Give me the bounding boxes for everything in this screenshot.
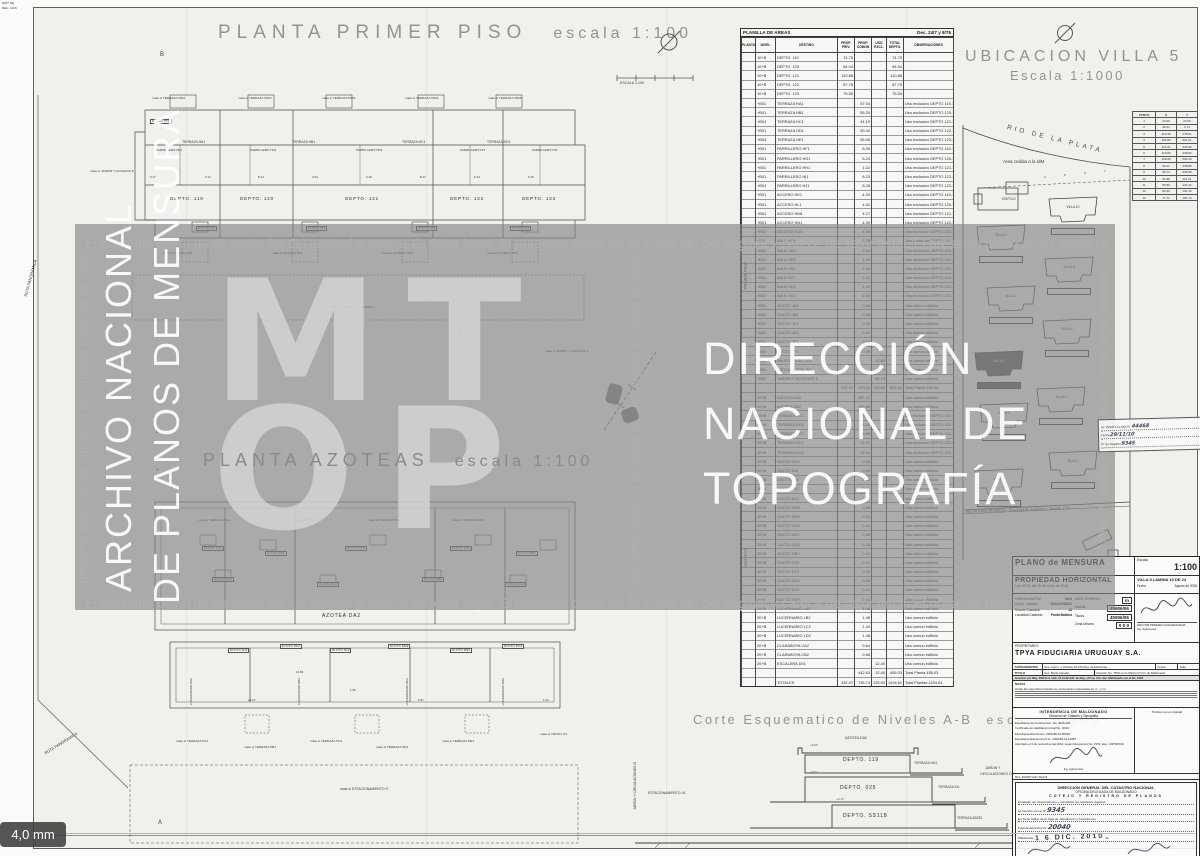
cell-comun: 442.63 <box>855 668 872 677</box>
section-label: ESTACIONAMIENTO JA <box>648 792 685 796</box>
cell-uso: 12.40 <box>872 659 887 668</box>
cell-obs: Uso comun edificio <box>904 622 954 631</box>
cell-planta <box>742 209 756 218</box>
intendencia-subtitle: Direccion de Catastro y Topografia <box>1015 714 1132 719</box>
fecha-label: Fecha <box>1137 584 1146 588</box>
field-value-boxed: 0 0 0 <box>1116 622 1132 629</box>
cell-planta <box>742 163 756 172</box>
intendencia-lines: Expediente de Construccion: No. 3026-006… <box>1015 721 1132 746</box>
titulo-registro: Registro No. 7870 en la Oficina D.N.C. d… <box>1095 670 1199 675</box>
cell-planta <box>742 144 756 153</box>
section-label: JARDIN Y CIRCULACIONES O <box>634 762 638 810</box>
plan-label: mata s/ TERRAZA HD1 <box>376 746 408 749</box>
cell-obs: Uso exclusivo DEPTO 121-1 <box>904 117 954 126</box>
cell-comun <box>855 71 872 80</box>
cell-uso <box>872 98 887 107</box>
stamp-handwritten-value: 44468 <box>1131 423 1149 429</box>
cell-comun <box>855 659 872 668</box>
catastro-date-line: Maldonado, 1 6 DIC. 2010 de <box>1018 834 1194 842</box>
cell-total <box>887 172 904 181</box>
catastro-text4: Fraccionamientos N° 20040 <box>1018 823 1194 832</box>
cell-planta <box>742 677 756 686</box>
table-row: +B01 ACCESO HK1 4.33 Uso exclusivo DEPTO… <box>742 190 954 199</box>
roof-title-scale: escala 1:100 <box>455 453 594 470</box>
table-row: +B01 PARRILLERO HH1 1.02 Uso exclusivo D… <box>742 163 954 172</box>
annotation-label: mata s/ ESTACIONAMIENTO O <box>340 788 388 792</box>
antecedentes-text: Exp. Agrim. J. Pardias 15.076 Reg. de Me… <box>1043 664 1156 669</box>
cell-destino: PARRILLERO HH1 <box>776 163 838 172</box>
cell-obs <box>904 53 954 62</box>
cell-prop: 432.97 <box>838 677 855 686</box>
escala-value: 1:100 <box>1137 562 1197 572</box>
coordinate-row: 13 77.71 181.70 <box>1133 195 1198 201</box>
table-row: 20+B LUCERNARIO LB2 1.46 Uso comun edifi… <box>742 613 954 622</box>
plan-label: mata s/ TERRAZA H001 <box>152 97 185 100</box>
table-row: 20+B CLARABOYA CB2 0.66 Uso comun edific… <box>742 650 954 659</box>
cell-uso <box>872 108 887 117</box>
plan-label: PARRILLERO HH1 <box>356 149 382 152</box>
first-floor-title: PLANTA PRIMER PISOescala 1:100 <box>218 22 692 44</box>
cell-prop <box>838 135 855 144</box>
cell-total <box>887 163 904 172</box>
plan-label: TERRAZA HD1 <box>487 141 510 145</box>
plan-label: PARRILLERO HG1 <box>250 149 277 152</box>
cell-destino: LUCERNARIO LD2 <box>776 631 838 640</box>
cell-planta <box>742 126 756 135</box>
cell-nivel: 10+B <box>756 53 776 62</box>
annotation-label: B <box>160 52 164 59</box>
intendencia-line: Certificado de Habilitacion Final No. /2… <box>1015 726 1132 730</box>
cell-planta <box>742 135 756 144</box>
cell-uso <box>872 181 887 190</box>
cell-obs: Uso exclusivo DEPTO 120-1 <box>904 154 954 163</box>
cell-destino: TERRAZA HE1 <box>776 135 838 144</box>
cell-comun: 735.74 <box>855 677 872 686</box>
cell-obs <box>904 80 954 89</box>
cell-destino: PARRILLERO HF1 <box>776 144 838 153</box>
cell-total <box>887 190 904 199</box>
catastro-tomo-label: Fraccionamientos N° <box>1018 826 1047 830</box>
plan-label: LUCERNARIO DC2 <box>406 678 409 705</box>
measurement-badge: 4,0 mm <box>0 822 66 847</box>
cell-destino <box>776 668 838 677</box>
plan-label: 8.14 <box>258 176 264 179</box>
cell-uso <box>872 613 887 622</box>
cell-prop <box>838 144 855 153</box>
cell-comun: 44.19 <box>855 117 872 126</box>
cell-destino: ACCESO HM1 <box>776 209 838 218</box>
cell-destino: CLARABOYA CB2 <box>776 650 838 659</box>
cell-comun <box>855 80 872 89</box>
table-row: 20+B ESCALERA D01 12.40 Uso comun edific… <box>742 659 954 668</box>
plan-label: DUCTO DJ2 <box>228 648 249 653</box>
cell-comun: 4.31 <box>855 200 872 209</box>
cell-nivel: +B01 <box>756 181 776 190</box>
catastro-text2: se inscribe con el N° 9345 <box>1018 806 1194 815</box>
section-label: +6.05 <box>810 744 818 747</box>
cell-total <box>887 613 904 622</box>
field-value-boxed: 45906/06 <box>1107 614 1132 621</box>
plan-label: 0.14 <box>205 176 211 179</box>
coordinates-body: 1 23.06 23.06 2 48.21 6.71 3 110.35 278.… <box>1133 118 1198 201</box>
areas-table-decree: Dec. 24/7 y 8/76 <box>917 30 951 35</box>
cell-obs: Uso exclusivo DEPTO 121-1 <box>904 209 954 218</box>
cell-planta <box>742 154 756 163</box>
cell-comun: 0.66 <box>855 650 872 659</box>
cell-total: 74.75 <box>887 53 904 62</box>
cell-comun: 1.48 <box>855 631 872 640</box>
cell-destino: DEPTO. 122 <box>776 80 838 89</box>
cell-obs: Uso exclusivo DEPTO 123-1 <box>904 135 954 144</box>
plan-label: mata s/ TERRAZA HB1 <box>244 746 276 749</box>
cell-nivel: +B01 <box>756 209 776 218</box>
cell-uso <box>872 154 887 163</box>
stamp-label: Fecha <box>1101 433 1109 437</box>
cell-uso <box>872 71 887 80</box>
cell-destino: TERRAZA HA1 <box>776 98 838 107</box>
cell-total <box>887 154 904 163</box>
annotation-label: A <box>158 820 162 827</box>
cell-destino: DEPTO. 119 <box>776 53 838 62</box>
catastro-inscribe-label: se inscribe con el N° <box>1018 809 1046 813</box>
table-row: 10+B DEPTO. 121 110.88 110.88 <box>742 71 954 80</box>
cell-comun: 8.26 <box>855 144 872 153</box>
cell-total <box>887 641 904 650</box>
plan-label: DEPTO. 120 <box>240 196 274 201</box>
plan-label: 6.14 <box>474 176 480 179</box>
watermark-archive-line1: ARCHIVO NACIONAL <box>98 240 140 592</box>
field-label: Titulos <box>1075 614 1084 621</box>
section-label: CIRCULACIONES O <box>980 773 1011 777</box>
cell-planta <box>742 200 756 209</box>
catastro-de: de <box>1105 836 1108 840</box>
cell-destino: LUCERNARIO LB2 <box>776 613 838 622</box>
map-label: 7 <box>1104 170 1106 173</box>
cell-uso <box>872 172 887 181</box>
areas-table-title: PLANILLA DE AREAS <box>743 30 790 35</box>
cell-nivel: +B01 <box>756 117 776 126</box>
col-prop-comun: PROP. COMUN <box>855 38 872 53</box>
catastro-line3: COTEJO Y REGISTRO DE PLANOS <box>1018 794 1194 798</box>
cell-destino: PARRILLERO HI1 <box>776 172 838 181</box>
cell-planta <box>742 622 756 631</box>
cadastral-field: Zona Urbana 0 0 0 <box>1075 622 1132 629</box>
stamp-line: N° de Registro 9345 <box>1101 438 1200 448</box>
cell-prop <box>838 108 855 117</box>
roof-title: PLANTA AZOTEASescala 1:100 <box>203 450 593 471</box>
cell-prop <box>838 209 855 218</box>
section-label: +0.15 <box>836 798 844 801</box>
cell-nivel: 10+B <box>756 71 776 80</box>
inscription-stamp: Se TOMO a la hoja N° 44468 Fecha 29/11/1… <box>1098 417 1200 453</box>
cell-prop <box>838 631 855 640</box>
cell-nivel: +B01 <box>756 200 776 209</box>
table-row: 442.63 12.40 455.03 Total Planta 455.03 <box>742 668 954 677</box>
punto-cell: 13 <box>1133 195 1156 201</box>
cell-comun: 8.28 <box>855 181 872 190</box>
plan-label: PARRILLERO HJ1 <box>532 149 558 152</box>
cell-uso <box>872 135 887 144</box>
table-row: 10+B DEPTO. 119 74.75 74.75 <box>742 53 954 62</box>
table-row: +B01 PARRILLERO HI1 8.23 Uso exclusivo D… <box>742 172 954 181</box>
map-label: 5 <box>1064 174 1066 177</box>
measurement-value: 4,0 mm <box>11 827 54 842</box>
cell-uso <box>872 190 887 199</box>
cell-nivel: 20+B <box>756 613 776 622</box>
cell-comun: 1.02 <box>855 163 872 172</box>
cell-comun: 8.23 <box>855 172 872 181</box>
map-label: 4 <box>1044 176 1046 179</box>
cell-prop <box>838 98 855 107</box>
cell-planta <box>742 650 756 659</box>
cell-obs: Uso comun edificio <box>904 613 954 622</box>
cell-uso <box>872 80 887 89</box>
cell-nivel: 10+B <box>756 62 776 71</box>
plan-label: DUCTO DM2 <box>388 644 410 649</box>
cell-uso: 12.40 <box>872 668 887 677</box>
cell-prop <box>838 126 855 135</box>
cell-uso <box>872 53 887 62</box>
cell-obs: Uso exclusivo DEPTO 120-1 <box>904 200 954 209</box>
stamp-handwritten-value: 9345 <box>1121 440 1136 446</box>
cell-planta <box>742 190 756 199</box>
cell-comun: 8.24 <box>855 154 872 163</box>
table-row: +B01 TERRAZA HC1 44.19 Uso exclusivo DEP… <box>742 117 954 126</box>
col-uso: USO EXCL. <box>872 38 887 53</box>
cell-prop <box>838 641 855 650</box>
catastro-text1: Cotejado, sin observaciones y cumplidos … <box>1018 800 1194 805</box>
location-title-label: UBICACION VILLA 5 <box>965 48 1182 65</box>
cell-prop <box>838 181 855 190</box>
cell-uso <box>872 641 887 650</box>
plan-label: 1.95 <box>350 689 356 692</box>
cell-comun: 4.27 <box>855 209 872 218</box>
cell-prop: 84.04 <box>838 62 855 71</box>
coordinates-table: PUNTO X Y 1 23.06 23.06 2 48.21 <box>1132 111 1198 201</box>
map-label: EDIFICIO <box>1002 198 1016 202</box>
cell-prop <box>838 190 855 199</box>
cell-destino: CLARABOYA CA2 <box>776 641 838 650</box>
cell-nivel: +B01 <box>756 126 776 135</box>
col-total: TOTAL DEPTO. <box>887 38 904 53</box>
table-row: +B01 TERRAZA HB1 55.20 Uso exclusivo DEP… <box>742 108 954 117</box>
cell-prop <box>838 668 855 677</box>
propietario-label: PROPIETARIO: <box>1015 644 1039 648</box>
plan-label: DUCTO DN2 <box>450 648 472 653</box>
col-observaciones: OBSERVACIONES <box>904 38 954 53</box>
cell-destino: TOTALES <box>776 677 838 686</box>
cell-prop <box>838 622 855 631</box>
cell-planta <box>742 71 756 80</box>
cell-uso <box>872 126 887 135</box>
cell-nivel: 10+B <box>756 80 776 89</box>
cell-obs: Uso exclusivo DEPTO 120-1 <box>904 108 954 117</box>
cell-planta <box>742 641 756 650</box>
plan-label: mata s/ TERRAZA H002 <box>238 97 271 100</box>
propietario-name: TPYA FIDUCIARIA URUGUAY S.A. <box>1015 650 1197 657</box>
cell-prop <box>838 163 855 172</box>
cell-uso <box>872 631 887 640</box>
stamp-label: Se TOMO a la hoja N° <box>1101 424 1131 429</box>
cell-uso <box>872 209 887 218</box>
cell-nivel: +B01 <box>756 190 776 199</box>
cell-destino: TERRAZA HD1 <box>776 126 838 135</box>
plan-label: LUCERNARIO DD2 <box>502 678 505 705</box>
cell-comun: 1.46 <box>855 613 872 622</box>
cell-obs <box>904 89 954 98</box>
plan-label: mata s/ TERRAZA HE1 <box>442 740 474 743</box>
table-row: +B04 TERRAZA HE1 55.06 Uso exclusivo DEP… <box>742 135 954 144</box>
cell-nivel: +B01 <box>756 108 776 117</box>
cell-obs: Uso comun edificio <box>904 631 954 640</box>
cell-uso <box>872 144 887 153</box>
plan-label: mata s/ TERRAZA HC1 <box>310 740 342 743</box>
villa-label: VILLA 10 <box>1046 205 1100 209</box>
cell-destino: ACCESO HK1 <box>776 190 838 199</box>
cell-obs: Uso comun edificio <box>904 650 954 659</box>
sello-col: Sello <box>1178 664 1199 669</box>
plan-label: 8.17 <box>420 176 426 179</box>
plan-label: mata s/ TERRAZA HA1 <box>176 740 208 743</box>
section-label: DEPTO. SS11B <box>843 814 888 820</box>
table-row: 10+B DEPTO. 122 87.75 87.75 <box>742 80 954 89</box>
cadastral-field: Titulos 45906/06 <box>1075 614 1132 621</box>
field-value: Punta Ballena <box>1051 613 1072 617</box>
cell-uso: 125.90 <box>872 677 887 686</box>
surveyor-signature <box>1137 595 1195 621</box>
cell-total <box>887 622 904 631</box>
cell-prop: 75.55 <box>838 89 855 98</box>
titulo-text: Esc. Maria Canales <box>1043 670 1095 675</box>
north-arrow-icon <box>1052 20 1078 46</box>
plan-label: DUCTO DK2 <box>280 644 302 649</box>
plan-label: LUCERNARIO DA2 <box>190 678 193 705</box>
notas-box: NOTAS Todas las superficies lineales se … <box>1013 681 1199 708</box>
cell-planta <box>742 62 756 71</box>
map-label: Area cedida a la IdM <box>1003 160 1044 165</box>
plan-label: 6.67 <box>418 699 424 702</box>
areas-table-header-row: PLANTA NIVEL DESTINO PROP. PRIV. PROP. C… <box>742 38 954 53</box>
cell-prop <box>838 650 855 659</box>
table-row: 20+B LUCERNARIO LC2 1.44 Uso comun edifi… <box>742 622 954 631</box>
field-label: Zona Urbana <box>1075 622 1094 629</box>
plan-label: 2.40 <box>366 176 372 179</box>
cell-uso <box>872 62 887 71</box>
cell-prop <box>838 613 855 622</box>
date-stamp: 1 6 DIC. 2010 <box>1035 833 1104 842</box>
cell-obs: Uso comun edificio <box>904 659 954 668</box>
table-row: +B01 PARRILLERO HF1 8.26 Uso exclusivo D… <box>742 144 954 153</box>
cell-total <box>887 181 904 190</box>
catastro-number-handwritten: 9345 <box>1047 806 1066 814</box>
cell-planta <box>742 668 756 677</box>
cell-obs: Uso exclusivo DEPTO 119-1 <box>904 190 954 199</box>
cell-prop <box>838 154 855 163</box>
cell-destino: TERRAZA HC1 <box>776 117 838 126</box>
cell-obs: Uso exclusivo DEPTO 121-1 <box>904 163 954 172</box>
intendencia-line: Expediente Electronico P.H.: 2009-88-01-… <box>1015 737 1132 741</box>
table-row: TOTALES 432.97 735.74 125.90 1294.61 Tot… <box>742 677 954 686</box>
cell-nivel: 20+B <box>756 659 776 668</box>
intendencia-line: Aprobado el 3 de noviembre del 2010, seg… <box>1015 742 1132 746</box>
plan-label: DEPTO. 123 <box>522 196 556 201</box>
watermark-dnt-line3: TOPOGRAFÍA <box>703 463 1017 515</box>
plan-label: 11.86 <box>296 671 303 674</box>
annotation-label: REG. 1109 <box>2 7 17 10</box>
cell-uso <box>872 650 887 659</box>
timbres-box: Timbres (en el original) <box>1135 708 1199 773</box>
cell-total <box>887 200 904 209</box>
cell-obs: Total Plantas 1294.61 <box>904 677 954 686</box>
cell-total <box>887 209 904 218</box>
section-label: DEPTO. 025 <box>840 786 876 792</box>
lamina-ref: VILLA 5 LAMINA 10 DE 24 <box>1137 577 1197 582</box>
table-row: +B01 ACCESO HL1 4.31 Uso exclusivo DEPTO… <box>742 200 954 209</box>
villa-outline <box>1046 196 1100 226</box>
cell-total <box>887 631 904 640</box>
cell-planta <box>742 117 756 126</box>
cell-planta <box>742 89 756 98</box>
intendencia-line: Expediente Electronico: 2009-88-01-00504 <box>1015 732 1132 736</box>
cell-total <box>887 98 904 107</box>
intendencia-firma-caption: Ing. Agrimensor <box>1015 767 1132 771</box>
fecha-col: Fecha <box>1156 664 1178 669</box>
cell-nivel: 20+B <box>756 641 776 650</box>
valor-real-line: Res. 202/90 Valor Real $ <box>1013 774 1199 780</box>
cell-planta <box>742 172 756 181</box>
notas-label: NOTAS <box>1015 682 1025 686</box>
cell-planta <box>742 108 756 117</box>
cell-total: 84.04 <box>887 62 904 71</box>
catastro-stamp: DIRECCION GENERAL DEL CATASTRO NACIONAL … <box>1015 782 1197 856</box>
stamp-label: N° de Registro <box>1101 441 1121 446</box>
table-row: +B01 TERRAZA HD1 50.40 Uso exclusivo DEP… <box>742 126 954 135</box>
plan-label: DEPTO. 122 <box>450 196 484 201</box>
cell-total <box>887 108 904 117</box>
cell-comun: 50.40 <box>855 126 872 135</box>
cell-total: 110.88 <box>887 71 904 80</box>
cell-uso <box>872 163 887 172</box>
cell-total <box>887 126 904 135</box>
cell-nivel: 20+B <box>756 650 776 659</box>
watermark-archive-line2: DE PLANOS DE MENSURA <box>146 228 188 604</box>
catastro-city: Maldonado, <box>1018 836 1034 840</box>
cell-nivel: 20+B <box>756 622 776 631</box>
cell-destino: ACCESO HL1 <box>776 200 838 209</box>
titulo-label: TITULO <box>1013 670 1043 675</box>
map-label: 6 <box>1084 172 1086 175</box>
cell-prop <box>838 200 855 209</box>
cell-total <box>887 144 904 153</box>
col-planta: PLANTA <box>742 38 756 53</box>
cell-comun: 55.06 <box>855 135 872 144</box>
first-floor-title-label: PLANTA PRIMER PISO <box>218 22 527 43</box>
cell-nivel: +B01 <box>756 172 776 181</box>
cell-planta <box>742 631 756 640</box>
cell-destino: TERRAZA HB1 <box>776 108 838 117</box>
antecedentes-label: ANTECEDENTES <box>1013 664 1043 669</box>
plan-label: DUCTO DO2 <box>502 644 524 649</box>
cell-planta <box>742 181 756 190</box>
section-label: TERRAZA ABSS1 <box>957 817 983 821</box>
plan-label: DUCTO DL2 <box>330 648 351 653</box>
cell-destino: ESCALERA D01 <box>776 659 838 668</box>
cell-prop <box>838 117 855 126</box>
watermark-dnt-line2: NACIONAL DE <box>703 398 1028 450</box>
plan-label: mata s/ TERRAZA H005 <box>488 97 521 100</box>
table-row: +B01 PARRILLERO HG1 8.24 Uso exclusivo D… <box>742 154 954 163</box>
location-title-scale-wrap: Escala 1:1000 <box>1010 68 1125 83</box>
